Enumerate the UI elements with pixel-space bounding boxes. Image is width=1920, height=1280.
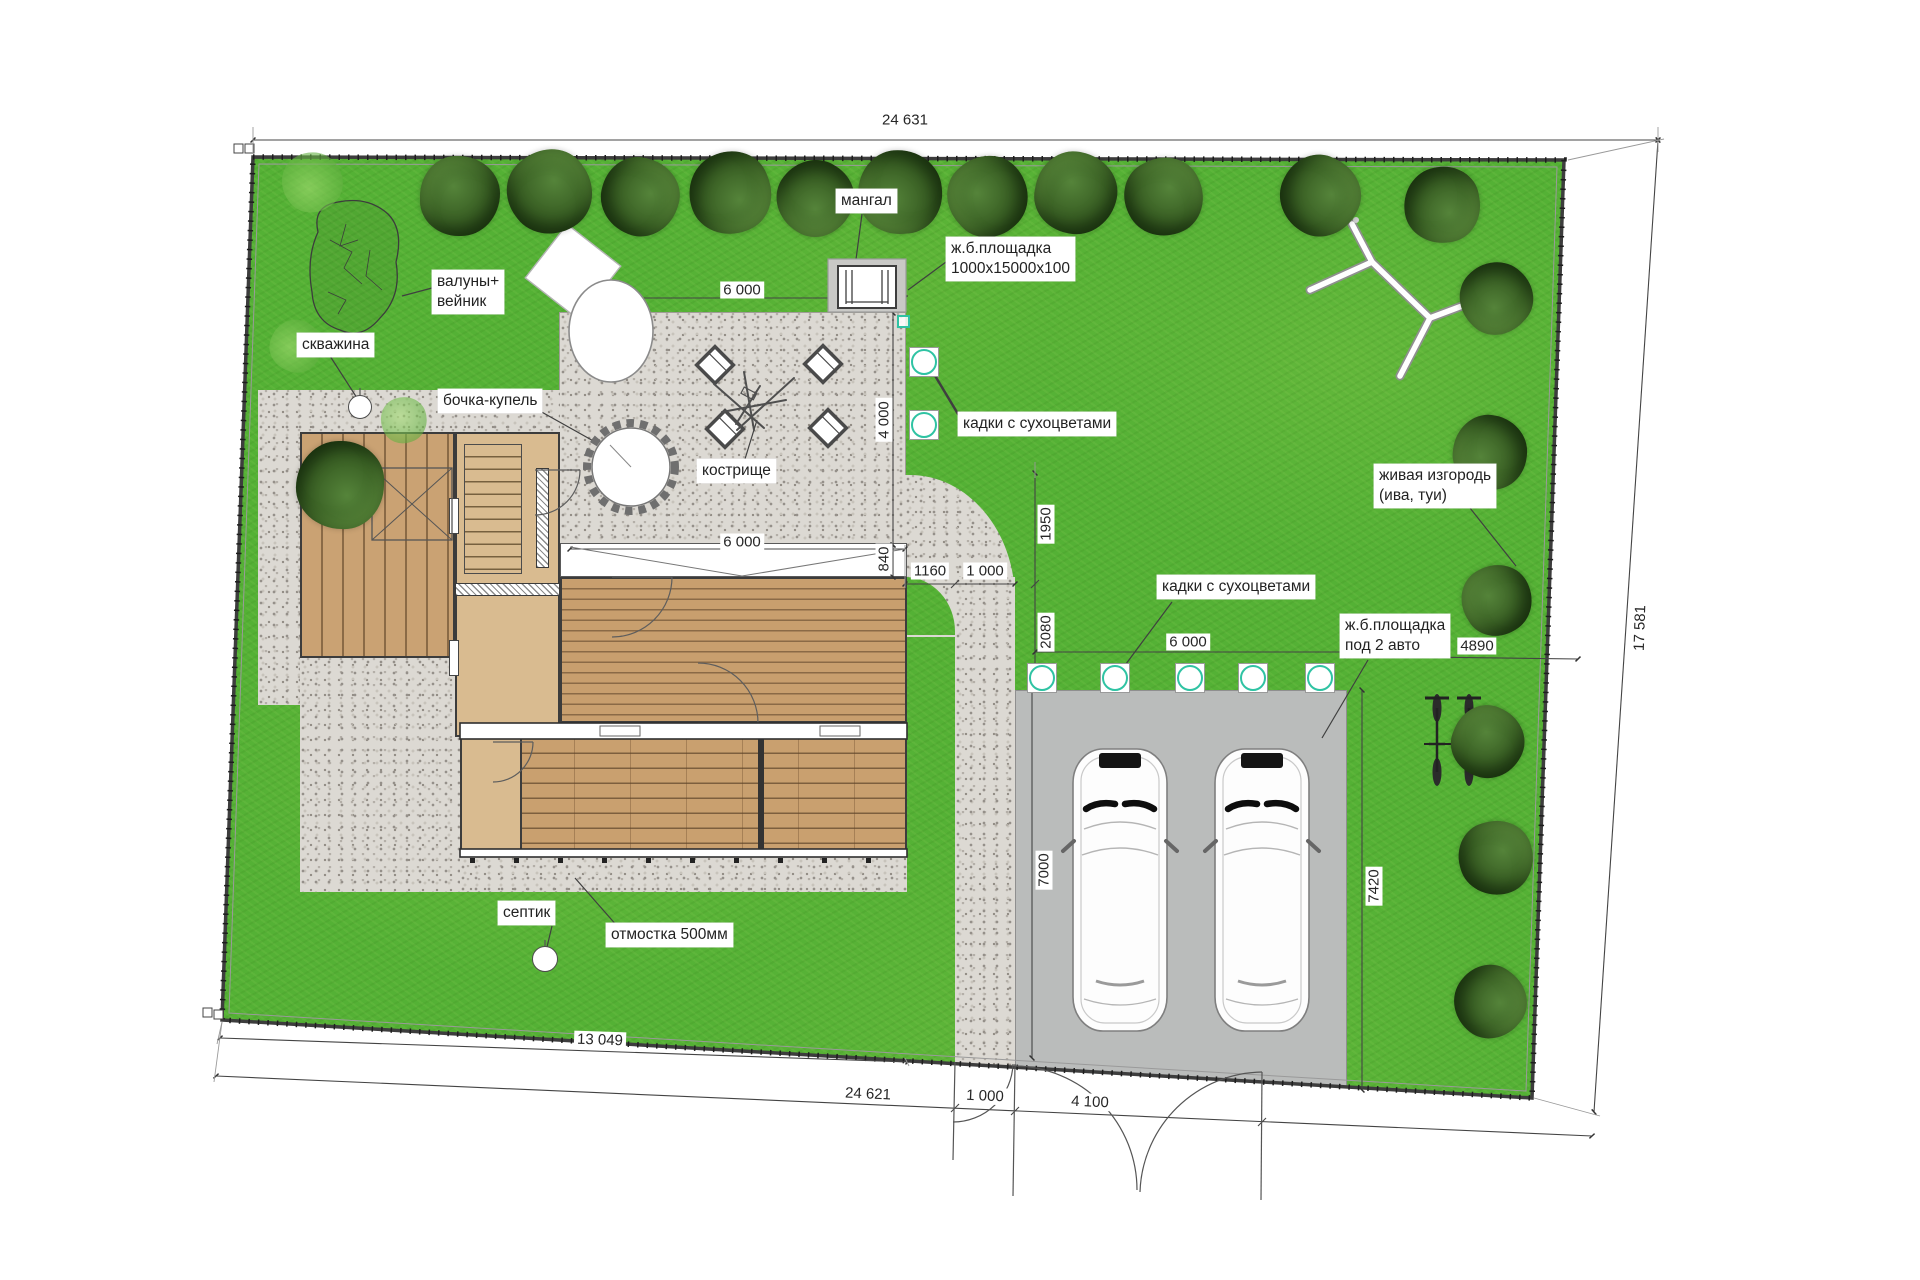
dim-gate-walk: 1 000 (963, 1087, 1007, 1106)
garden-path-walkway (955, 577, 1015, 1090)
gravel-patio (560, 313, 905, 545)
dim-bottom-total: 24 621 (842, 1084, 895, 1103)
house-window-west-1 (449, 498, 459, 534)
house-deck-main (560, 577, 907, 723)
house-wall-hatched-2 (536, 468, 549, 568)
gates (953, 1062, 1262, 1200)
site-plan: мангалж.б.площадка1000х15000х100валуны+в… (0, 0, 1920, 1280)
house-wall-divider (758, 737, 764, 852)
parking-pad (1015, 690, 1347, 1090)
house-window-west-2 (449, 640, 459, 676)
blind-area-bottom (460, 852, 907, 892)
house-wall-hatched-1 (455, 583, 560, 596)
dim-top-width: 24 631 (879, 112, 931, 129)
house-deck-west (300, 432, 455, 658)
blind-area-southwest (300, 658, 460, 892)
dim-right-height: 17 581 (1631, 602, 1650, 654)
house-vestibule (460, 737, 522, 852)
blind-area-top (258, 390, 560, 432)
house-stairs (464, 444, 522, 574)
dim-gate-drive: 4 100 (1068, 1093, 1112, 1112)
house-window-band (560, 543, 907, 577)
plot-area (0, 0, 1920, 1280)
house-rooms-south (460, 737, 907, 852)
blind-area-left (258, 390, 300, 705)
